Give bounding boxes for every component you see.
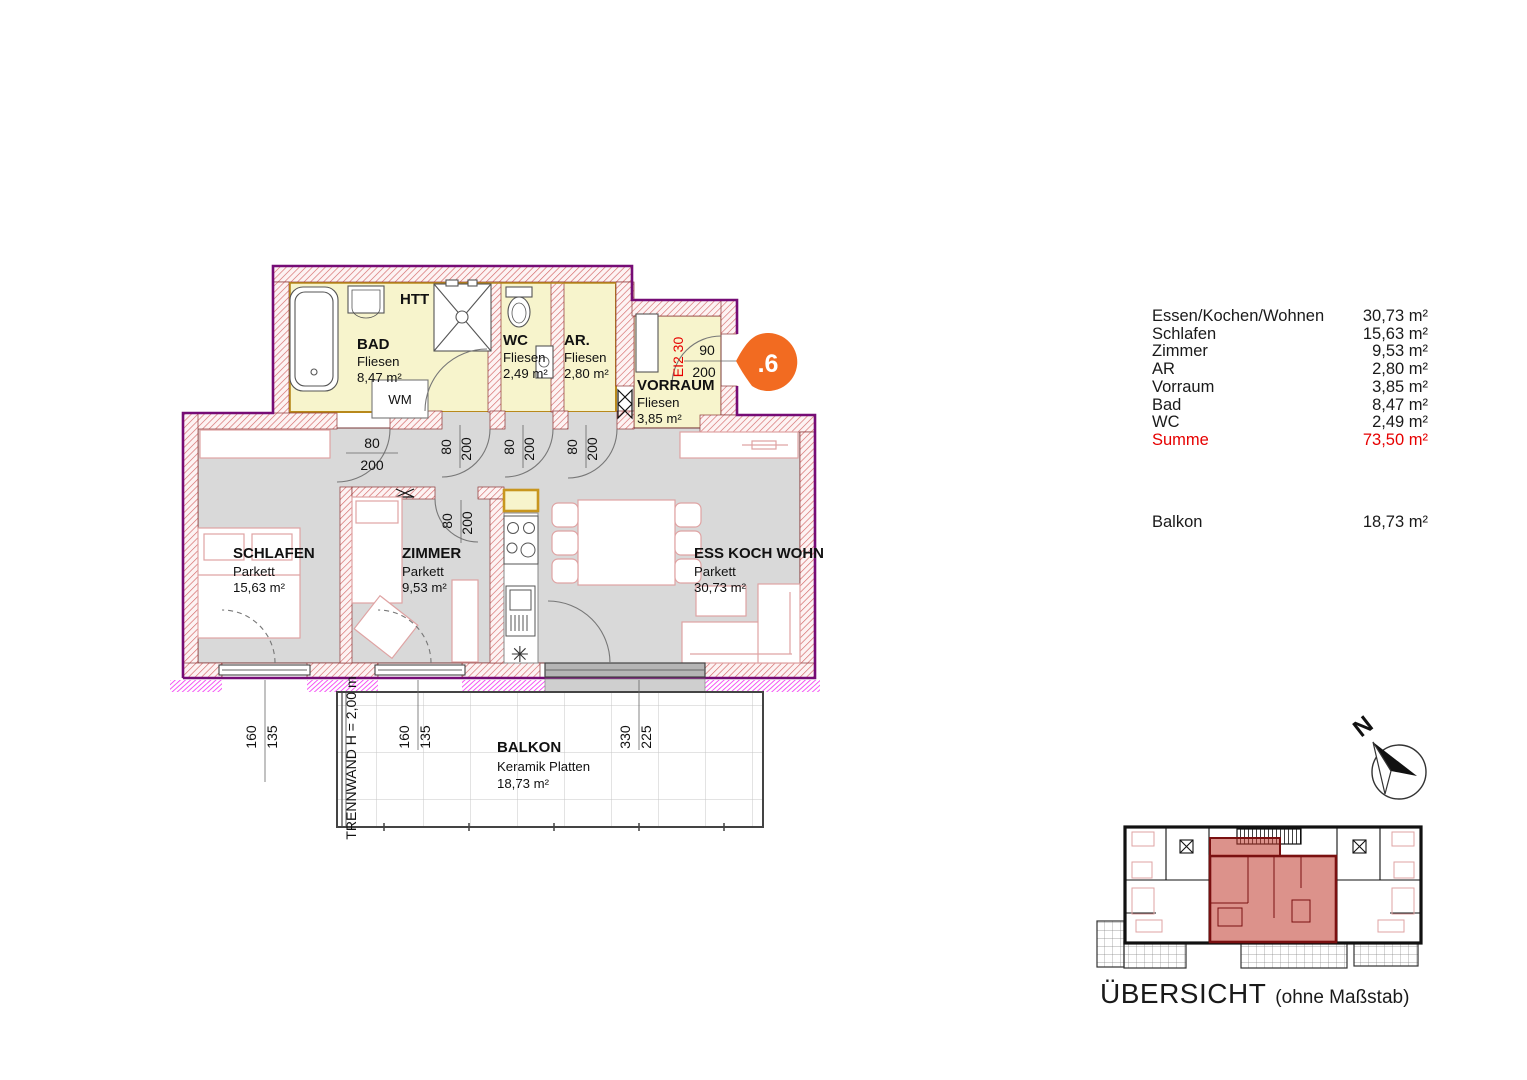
svg-text:135: 135: [417, 725, 433, 749]
table-row-total: Summe73,50 m²: [1152, 432, 1428, 450]
table-row: Vorraum3,85 m²: [1152, 379, 1428, 397]
table-row-balcony: Balkon 18,73 m²: [1152, 514, 1428, 532]
svg-text:WM: WM: [388, 392, 411, 407]
svg-text:90: 90: [699, 342, 715, 358]
overview-plan: [1096, 818, 1444, 974]
area-table: Essen/Kochen/Wohnen30,73 m² Schlafen15,6…: [1152, 308, 1428, 450]
svg-text:8,47 m²: 8,47 m²: [357, 370, 402, 385]
svg-text:135: 135: [264, 725, 280, 749]
table-row: AR2,80 m²: [1152, 361, 1428, 379]
svg-text:Fliesen: Fliesen: [503, 350, 546, 365]
svg-text:ESS KOCH WOHN: ESS KOCH WOHN: [694, 545, 824, 562]
unit-marker: .6: [736, 333, 797, 391]
table-row: Zimmer9,53 m²: [1152, 343, 1428, 361]
svg-text:Keramik Platten: Keramik Platten: [497, 759, 590, 774]
svg-text:200: 200: [458, 437, 474, 461]
svg-text:80: 80: [439, 513, 455, 529]
kitchen-block: ✳: [504, 490, 538, 667]
svg-text:80: 80: [501, 439, 517, 455]
balcony: TRENNWAND H = 2,00 m: [337, 676, 763, 839]
svg-text:330: 330: [617, 725, 633, 749]
svg-text:ZIMMER: ZIMMER: [402, 545, 461, 562]
svg-text:200: 200: [584, 437, 600, 461]
svg-text:18,73 m²: 18,73 m²: [497, 776, 550, 791]
svg-text:80: 80: [564, 439, 580, 455]
svg-text:SCHLAFEN: SCHLAFEN: [233, 545, 315, 562]
svg-text:Fliesen: Fliesen: [357, 354, 400, 369]
svg-text:Parkett: Parkett: [402, 564, 444, 579]
svg-text:160: 160: [396, 725, 412, 749]
svg-text:Parkett: Parkett: [694, 564, 736, 579]
table-row: Essen/Kochen/Wohnen30,73 m²: [1152, 308, 1428, 326]
unit-marker-label: .6: [758, 350, 779, 378]
svg-text:15,63 m²: 15,63 m²: [233, 580, 286, 595]
svg-text:30,73 m²: 30,73 m²: [694, 580, 747, 595]
overview-title-sub: (ohne Maßstab): [1275, 987, 1409, 1009]
svg-text:2,80 m²: 2,80 m²: [564, 366, 609, 381]
table-row: WC2,49 m²: [1152, 414, 1428, 432]
svg-text:200: 200: [521, 437, 537, 461]
overview-title-main: ÜBERSICHT: [1100, 978, 1266, 1010]
svg-text:Fliesen: Fliesen: [564, 350, 607, 365]
svg-text:AR.: AR.: [564, 332, 590, 349]
svg-text:160: 160: [243, 725, 259, 749]
svg-text:200: 200: [459, 511, 475, 535]
north-arrow: N: [1335, 712, 1455, 817]
table-row: Bad8,47 m²: [1152, 397, 1428, 415]
svg-text:Parkett: Parkett: [233, 564, 275, 579]
overview-title: ÜBERSICHT (ohne Maßstab): [1100, 978, 1409, 1010]
table-row: Schlafen15,63 m²: [1152, 326, 1428, 344]
svg-text:9,53 m²: 9,53 m²: [402, 580, 447, 595]
seal-strips: [170, 680, 820, 692]
svg-text:HTT: HTT: [400, 291, 429, 308]
svg-text:2,49 m²: 2,49 m²: [503, 366, 548, 381]
svg-text:80: 80: [364, 435, 380, 451]
svg-text:EI2 30: EI2 30: [670, 337, 686, 378]
svg-text:3,85 m²: 3,85 m²: [637, 411, 682, 426]
trennwand-note: TRENNWAND H = 2,00 m: [343, 676, 359, 839]
svg-text:200: 200: [360, 457, 384, 473]
svg-text:WC: WC: [503, 332, 528, 349]
north-label: N: [1348, 712, 1378, 743]
svg-text:Fliesen: Fliesen: [637, 395, 680, 410]
svg-text:80: 80: [438, 439, 454, 455]
freezer-symbol: ✳: [511, 642, 529, 667]
svg-text:BAD: BAD: [357, 336, 390, 353]
floorplan-drawing: ✳ TRENNWAND H = 2,00 m BAD Fliesen 8,47: [160, 250, 850, 850]
svg-text:225: 225: [638, 725, 654, 749]
svg-text:BALKON: BALKON: [497, 739, 561, 756]
svg-text:200: 200: [692, 364, 716, 380]
